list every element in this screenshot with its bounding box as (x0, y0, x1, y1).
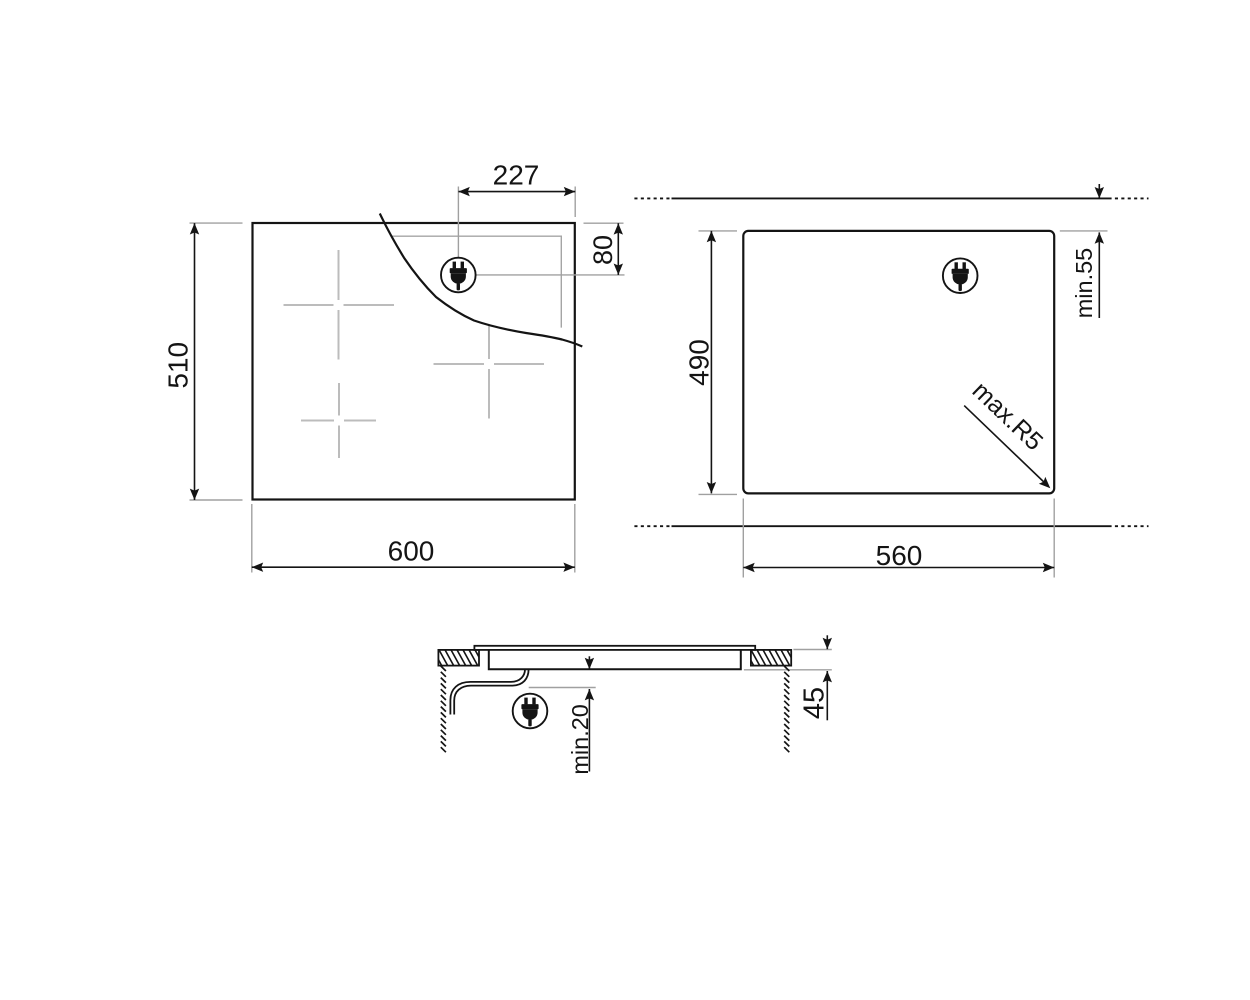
svg-text:560: 560 (876, 540, 923, 571)
svg-text:min.55: min.55 (1071, 248, 1097, 319)
svg-text:490: 490 (683, 339, 714, 386)
svg-text:600: 600 (388, 536, 435, 567)
svg-text:510: 510 (163, 342, 194, 389)
svg-text:min.20: min.20 (567, 704, 593, 775)
svg-text:227: 227 (493, 160, 540, 191)
svg-text:80: 80 (588, 235, 618, 265)
svg-text:45: 45 (799, 687, 831, 719)
